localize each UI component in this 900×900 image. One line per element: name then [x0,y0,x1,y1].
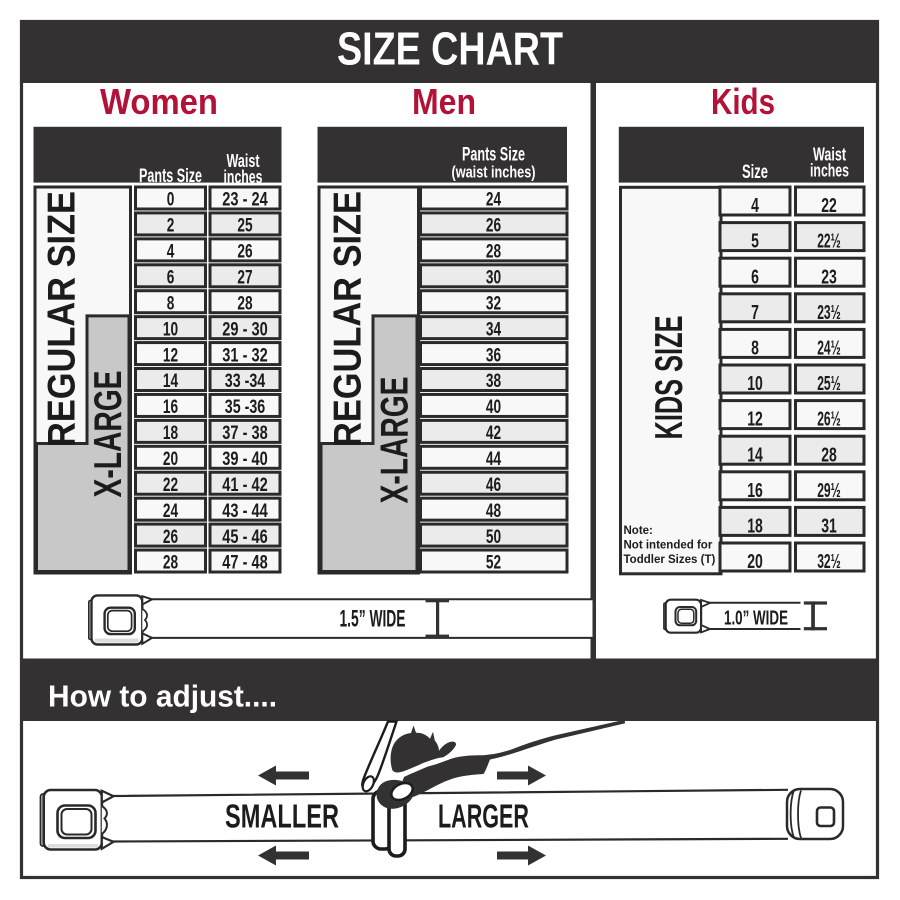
svg-text:39 - 40: 39 - 40 [222,449,267,470]
svg-text:2: 2 [167,216,175,237]
svg-text:22½: 22½ [817,231,841,253]
svg-text:(waist inches): (waist inches) [452,164,536,182]
svg-text:28: 28 [237,293,252,314]
svg-text:X-LARGE: X-LARGE [374,377,417,504]
svg-text:41 - 42: 41 - 42 [222,475,267,496]
svg-text:Pants Size: Pants Size [139,165,202,187]
svg-text:0: 0 [167,190,175,211]
svg-text:LARGER: LARGER [438,798,529,835]
svg-text:29½: 29½ [817,480,841,502]
svg-text:8: 8 [751,338,759,360]
svg-text:26: 26 [163,527,178,548]
svg-text:28: 28 [163,553,178,574]
svg-text:24½: 24½ [817,338,841,360]
svg-text:Not intended for: Not intended for [624,540,713,552]
svg-text:Men: Men [412,81,476,122]
svg-text:6: 6 [751,266,759,288]
svg-text:29 - 30: 29 - 30 [222,319,267,340]
svg-text:Pants Size: Pants Size [462,144,525,166]
svg-text:23 - 24: 23 - 24 [222,190,268,211]
svg-text:How to adjust....: How to adjust.... [48,679,277,714]
svg-text:1.0” WIDE: 1.0” WIDE [724,607,788,630]
svg-text:inches: inches [224,166,263,187]
svg-text:8: 8 [167,293,175,314]
svg-text:34: 34 [486,319,502,340]
svg-text:37 - 38: 37 - 38 [222,423,267,444]
svg-text:24: 24 [163,501,179,522]
svg-text:22: 22 [163,475,178,496]
svg-text:16: 16 [747,480,763,502]
svg-text:10: 10 [163,319,178,340]
svg-text:Women: Women [100,81,218,122]
svg-text:12: 12 [747,409,763,431]
svg-text:REGULAR SIZE: REGULAR SIZE [41,191,84,447]
svg-text:28: 28 [821,444,837,466]
svg-text:16: 16 [163,397,178,418]
svg-text:18: 18 [747,516,763,538]
svg-text:26½: 26½ [817,409,841,431]
svg-text:4: 4 [751,195,759,217]
svg-text:32½: 32½ [817,551,841,573]
svg-text:31 - 32: 31 - 32 [222,345,267,366]
svg-text:30: 30 [486,267,501,288]
svg-text:18: 18 [163,423,178,444]
svg-text:23: 23 [821,266,837,288]
svg-text:Size: Size [742,161,768,183]
svg-text:50: 50 [486,527,501,548]
svg-text:40: 40 [486,397,501,418]
svg-text:24: 24 [486,190,502,211]
svg-text:31: 31 [821,516,837,538]
svg-text:4: 4 [167,242,175,263]
svg-text:20: 20 [747,551,763,573]
svg-text:48: 48 [486,501,501,522]
svg-text:X-LARGE: X-LARGE [87,371,130,498]
svg-text:SIZE CHART: SIZE CHART [337,23,563,75]
svg-text:20: 20 [163,449,178,470]
svg-text:25: 25 [237,216,253,237]
svg-text:46: 46 [486,475,501,496]
svg-text:27: 27 [237,267,252,288]
svg-text:10: 10 [747,373,763,395]
svg-text:Note:: Note: [624,525,653,537]
svg-text:26: 26 [237,242,252,263]
svg-text:12: 12 [163,345,178,366]
svg-text:5: 5 [751,231,759,253]
svg-text:6: 6 [167,267,175,288]
svg-text:Kids: Kids [711,81,775,122]
svg-text:33 -34: 33 -34 [225,371,266,392]
svg-text:36: 36 [486,345,501,366]
svg-text:47 - 48: 47 - 48 [222,553,267,574]
svg-text:SMALLER: SMALLER [225,798,339,835]
svg-text:42: 42 [486,423,501,444]
svg-text:Toddler Sizes (T): Toddler Sizes (T) [624,554,716,566]
svg-text:14: 14 [163,371,179,392]
svg-text:25½: 25½ [817,373,841,395]
svg-text:43 - 44: 43 - 44 [222,501,268,522]
svg-text:inches: inches [810,160,849,181]
svg-text:REGULAR SIZE: REGULAR SIZE [327,191,370,447]
svg-text:45 - 46: 45 - 46 [222,527,267,548]
svg-text:35 -36: 35 -36 [225,397,265,418]
svg-text:1.5” WIDE: 1.5” WIDE [340,606,406,633]
svg-text:7: 7 [751,302,759,324]
svg-text:22: 22 [821,195,837,217]
svg-text:28: 28 [486,242,501,263]
svg-text:52: 52 [486,553,501,574]
svg-text:14: 14 [747,444,763,466]
svg-text:44: 44 [486,449,502,470]
svg-text:32: 32 [486,293,501,314]
svg-text:38: 38 [486,371,501,392]
svg-text:26: 26 [486,216,501,237]
svg-text:KIDS SIZE: KIDS SIZE [648,316,691,440]
svg-text:23½: 23½ [817,302,841,324]
